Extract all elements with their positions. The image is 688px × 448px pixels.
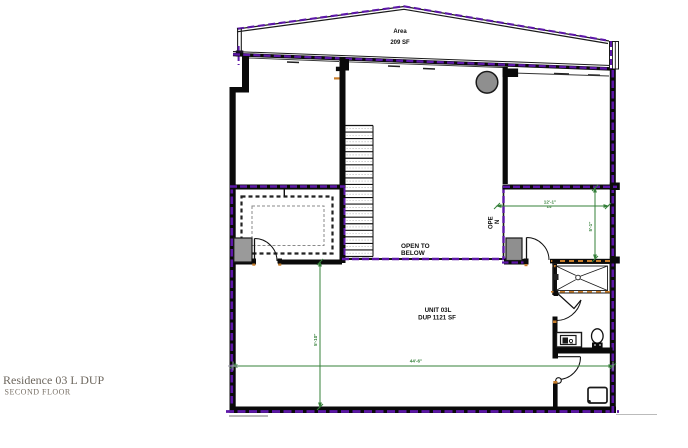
svg-text:12'-1": 12'-1"	[544, 200, 556, 205]
svg-text:Residence 03 L DUP: Residence 03 L DUP	[3, 373, 105, 387]
svg-text:UNIT 03L: UNIT 03L	[425, 307, 452, 314]
svg-text:SECOND FLOOR: SECOND FLOOR	[5, 388, 71, 397]
svg-text:209 SF: 209 SF	[390, 40, 410, 46]
svg-text:1/2": 1/2"	[547, 205, 554, 209]
svg-text:Area: Area	[393, 29, 407, 35]
svg-text:N: N	[495, 220, 501, 224]
svg-text:OPE: OPE	[489, 216, 495, 229]
svg-text:BELOW: BELOW	[401, 250, 426, 257]
svg-text:44'-6": 44'-6"	[410, 359, 422, 364]
svg-text:5'-10": 5'-10"	[313, 334, 318, 346]
svg-text:DUP 1121 SF: DUP 1121 SF	[418, 315, 456, 322]
svg-text:5'-1": 5'-1"	[588, 222, 593, 232]
